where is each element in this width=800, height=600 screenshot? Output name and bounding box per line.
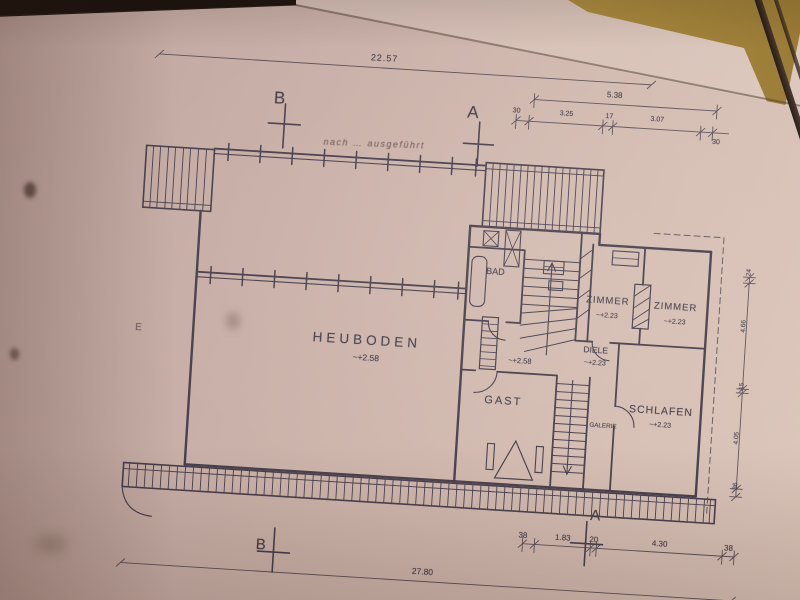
room-label-bad: BAD (479, 266, 512, 277)
stairs (473, 257, 597, 476)
pencil-mark: E (135, 323, 142, 333)
inner-walls (185, 148, 716, 497)
wall-posts (210, 143, 476, 300)
photo-of-floor-plan: 22.57 B A nach … ausgeführt 5.38 30 3.25… (0, 0, 800, 600)
dim-segment: 20 (584, 536, 604, 545)
paper-stain (24, 182, 36, 198)
paper-smudge (34, 536, 68, 552)
floor-plan-drawing: 22.57 B A nach … ausgeführt 5.38 30 3.25… (32, 26, 800, 600)
roof-overhang-dashed (637, 233, 724, 515)
dim-segment: 38 (718, 544, 738, 553)
section-marker-b-bottom: B (255, 537, 266, 553)
dim-segment: 38 (513, 531, 533, 540)
section-marker-b-top: B (273, 89, 285, 107)
bathtub (469, 256, 487, 307)
section-marker-a-bottom: A (590, 508, 601, 524)
paper-smudge (226, 312, 240, 330)
dim-segment: 30 (508, 107, 524, 115)
paper-stain (10, 348, 19, 360)
dim-segment: 30 (708, 139, 724, 147)
loft-ladder-symbol (494, 440, 534, 480)
section-marker-a-top: A (467, 103, 479, 121)
dim-segment: 17 (598, 113, 620, 121)
